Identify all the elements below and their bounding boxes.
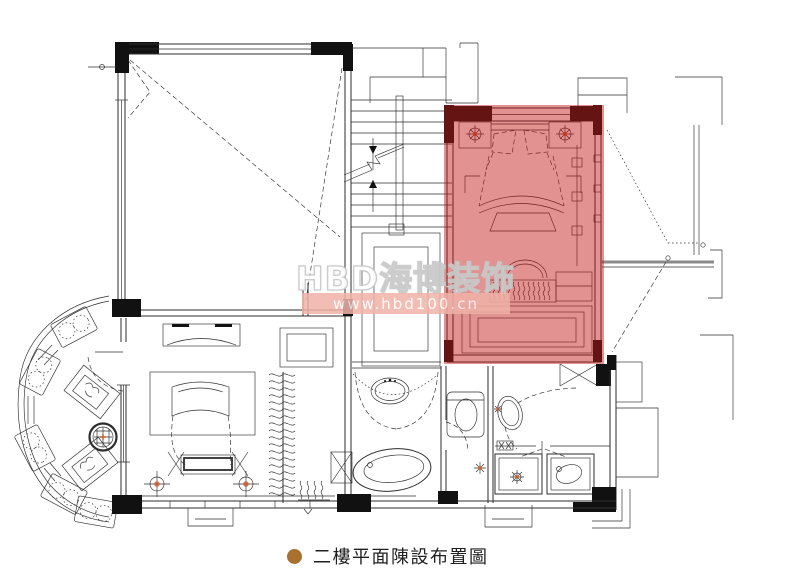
- walk-in-closet: [269, 328, 352, 503]
- bathroom-center: [351, 366, 493, 503]
- toilet: [554, 461, 584, 486]
- caption-text: 二樓平面陳設布置圖: [313, 543, 489, 569]
- outer-wall-bottom: [112, 489, 630, 528]
- shower-symbol: [510, 470, 524, 484]
- balcony-bay: [14, 296, 130, 528]
- bedside-lamp: [233, 471, 259, 497]
- vent-symbol: [474, 462, 486, 474]
- caption-bullet-icon: [287, 549, 302, 564]
- bathtub: [351, 445, 433, 495]
- watermark-url: www.hbd100.cn: [333, 295, 479, 313]
- bedside-lamp: [144, 471, 170, 497]
- round-table: [90, 424, 117, 451]
- toilet: [447, 392, 484, 437]
- sink: [494, 393, 526, 432]
- floor-plan-page: HBD海博装饰 www.hbd100.cn 二樓平面陳設布置圖: [0, 0, 800, 579]
- plan-caption: 二樓平面陳設布置圖: [287, 543, 489, 569]
- room-highlight-overlay: [444, 105, 604, 364]
- faucet-symbol: [494, 405, 502, 413]
- bedroom-lower-left: [140, 324, 335, 497]
- bathroom-right: [494, 355, 616, 512]
- watermark-band: www.hbd100.cn: [302, 293, 510, 314]
